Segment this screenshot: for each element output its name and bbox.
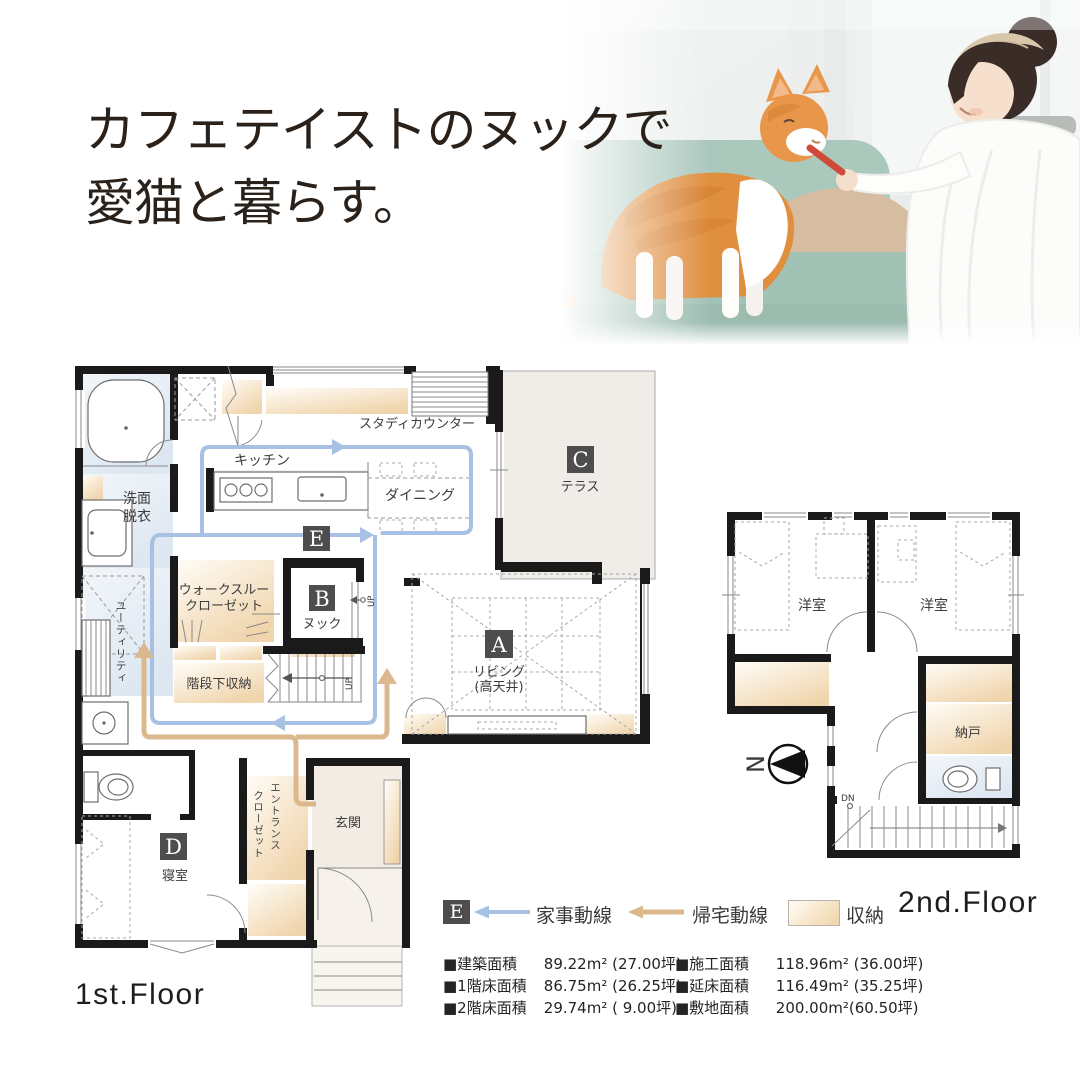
- area-value: 89.22m² (27.00坪): [544, 955, 682, 973]
- area-row: ■建築面積 89.22m² (27.00坪): [443, 953, 682, 974]
- photo-bottom-fade: [540, 322, 1080, 348]
- area-name: ■建築面積: [443, 953, 539, 974]
- stairs-up-label: UP: [345, 677, 355, 690]
- compass-north-label: N: [742, 755, 770, 773]
- second-floor-plan: 洋室 洋室 納戸 DN N: [722, 505, 1024, 923]
- area-name: ■2階床面積: [443, 997, 539, 1018]
- entrance-label: 玄関: [335, 816, 361, 831]
- kitchen-label: キッチン: [234, 453, 290, 469]
- area-row: ■敷地面積 200.00m²(60.50坪): [675, 997, 919, 1018]
- washroom-label-2: 脱衣: [123, 509, 151, 525]
- nook-up-label: UP: [367, 596, 377, 607]
- flow-tag-plan: E: [309, 527, 324, 551]
- headline: カフェテイストのヌックで 愛猫と暮らす。: [85, 94, 672, 239]
- area-row: ■延床面積 116.49m² (35.25坪): [675, 975, 923, 996]
- stairs-down-label: DN: [841, 794, 855, 804]
- living-high-ceiling: [412, 574, 636, 734]
- wtc-label-1: ウォークスルー: [179, 583, 270, 598]
- nook-tag: B: [314, 587, 329, 611]
- study-counter-label: スタディカウンター: [359, 416, 475, 432]
- kitchen-sink: [298, 477, 346, 501]
- western-room-left-label: 洋室: [798, 597, 826, 614]
- area-name: ■敷地面積: [675, 997, 771, 1018]
- area-row: ■1階床面積 86.75m² (26.25坪): [443, 975, 682, 996]
- headline-line1: カフェテイストのヌックで: [85, 94, 672, 167]
- area-value: 200.00m²(60.50坪): [776, 999, 919, 1017]
- area-row: ■施工面積 118.96m² (36.00坪): [675, 953, 923, 974]
- bedroom-bed: [82, 816, 130, 938]
- toilet-1f: [84, 772, 133, 802]
- legend-housework-label: 家事動線: [536, 901, 612, 928]
- bedroom-tag: D: [165, 835, 182, 859]
- bedroom-door: [207, 895, 245, 933]
- bedroom-label: 寝室: [162, 868, 188, 884]
- legend-storage-label: 収納: [846, 901, 884, 928]
- area-name: ■施工面積: [675, 953, 771, 974]
- return-arrow-icon: [626, 905, 686, 919]
- area-value: 86.75m² (26.25坪): [544, 977, 682, 995]
- nook-label: ヌック: [302, 617, 341, 632]
- second-floor-name: 2nd.Floor: [898, 886, 1038, 920]
- compass: [769, 745, 807, 783]
- entrance-closet-label-1: エントランス: [268, 782, 283, 892]
- area-name: ■延床面積: [675, 975, 771, 996]
- second-floor-svg: 洋室 洋室 納戸 DN N: [722, 505, 1024, 923]
- storage-swatch: [788, 900, 840, 926]
- legend-return-label: 帰宅動線: [692, 901, 768, 928]
- area-value: 116.49m² (35.25坪): [776, 977, 924, 995]
- living-note: (高天井): [474, 679, 523, 695]
- area-row: ■2階床面積 29.74m² ( 9.00坪): [443, 997, 677, 1018]
- terrace-tag: C: [572, 448, 588, 472]
- entrance-closet-label-2: クローゼット: [251, 790, 266, 900]
- housework-arrow-icon: [472, 905, 532, 919]
- toilet-2f: [943, 766, 1000, 792]
- western-room-right-label: 洋室: [920, 597, 948, 614]
- tv-board: [448, 716, 586, 734]
- nook-counter: [352, 582, 358, 638]
- wtc-label-2: クローゼット: [185, 599, 263, 614]
- first-floor-name: 1st.Floor: [75, 978, 205, 1012]
- living-label: リビング: [473, 665, 525, 680]
- utility-label: ユーティリティ: [112, 600, 128, 700]
- hall-washbasin: [82, 702, 128, 744]
- area-name: ■1階床面積: [443, 975, 539, 996]
- storeroom-label: 納戸: [955, 726, 981, 741]
- understairs-label: 階段下収納: [186, 677, 251, 692]
- bathtub: [88, 380, 164, 462]
- dining-label: ダイニング: [385, 488, 455, 504]
- flyer-canvas: カフェテイストのヌックで 愛猫と暮らす。: [0, 0, 1080, 1080]
- legend-flow-tag: E: [443, 900, 470, 924]
- headline-line2: 愛猫と暮らす。: [85, 167, 672, 240]
- washroom-label-1: 洗面: [123, 491, 151, 507]
- terrace-label: テラス: [561, 480, 600, 495]
- area-value: 118.96m² (36.00坪): [776, 955, 924, 973]
- living-tag: A: [490, 633, 507, 657]
- area-value: 29.74m² ( 9.00坪): [544, 999, 677, 1017]
